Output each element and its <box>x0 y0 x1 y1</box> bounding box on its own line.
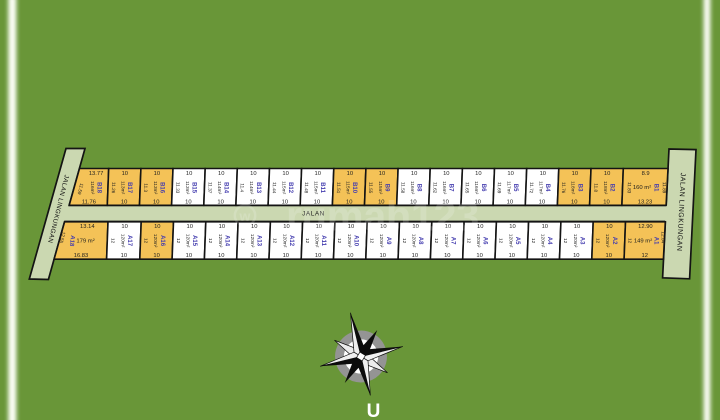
svg-text:10: 10 <box>379 171 385 177</box>
svg-text:10: 10 <box>186 224 192 230</box>
svg-text:B16: B16 <box>158 182 164 194</box>
svg-text:10: 10 <box>509 224 515 230</box>
svg-text:10: 10 <box>574 224 580 230</box>
svg-text:114m²: 114m² <box>216 181 222 195</box>
svg-text:11.69: 11.69 <box>497 182 502 194</box>
svg-text:12: 12 <box>531 238 536 244</box>
svg-text:12: 12 <box>176 238 181 244</box>
svg-text:11.3: 11.3 <box>143 183 148 192</box>
svg-text:10: 10 <box>507 171 513 177</box>
svg-text:11.33: 11.33 <box>175 182 180 194</box>
svg-text:12: 12 <box>144 238 149 244</box>
svg-text:120m²: 120m² <box>572 234 578 248</box>
svg-text:11.37: 11.37 <box>207 182 212 194</box>
svg-text:10: 10 <box>122 171 128 177</box>
svg-text:10: 10 <box>154 224 160 230</box>
svg-text:10: 10 <box>540 171 546 177</box>
svg-text:160 m²: 160 m² <box>633 185 651 191</box>
svg-text:B3: B3 <box>576 184 582 192</box>
svg-text:10: 10 <box>412 253 418 259</box>
svg-text:U: U <box>367 401 381 420</box>
svg-text:10: 10 <box>218 253 224 259</box>
svg-text:10: 10 <box>542 224 548 230</box>
svg-text:10: 10 <box>217 199 223 205</box>
svg-text:B9: B9 <box>383 184 389 192</box>
svg-text:A16: A16 <box>159 235 165 247</box>
svg-text:10: 10 <box>347 171 353 177</box>
svg-text:10: 10 <box>606 224 612 230</box>
svg-text:11.44: 11.44 <box>272 182 277 194</box>
svg-text:10: 10 <box>315 253 321 259</box>
svg-text:179 m²: 179 m² <box>76 239 94 245</box>
svg-text:10: 10 <box>571 199 577 205</box>
svg-text:117m²: 117m² <box>538 181 544 195</box>
svg-text:B8: B8 <box>416 184 422 192</box>
svg-text:A4: A4 <box>546 237 552 245</box>
svg-text:116m²: 116m² <box>89 181 95 195</box>
svg-text:10: 10 <box>476 253 482 259</box>
svg-text:A14: A14 <box>223 235 229 247</box>
svg-text:10: 10 <box>283 253 289 259</box>
svg-text:10: 10 <box>218 171 224 177</box>
svg-text:120m²: 120m² <box>152 234 158 248</box>
svg-text:11.83: 11.83 <box>627 182 632 194</box>
svg-text:A17: A17 <box>126 235 132 247</box>
svg-text:10: 10 <box>604 171 610 177</box>
svg-text:10: 10 <box>573 253 579 259</box>
svg-text:13.77: 13.77 <box>89 171 104 177</box>
svg-text:10: 10 <box>249 199 255 205</box>
svg-text:12.90: 12.90 <box>638 224 653 230</box>
svg-text:12: 12 <box>641 253 647 259</box>
svg-text:11.8: 11.8 <box>593 183 598 192</box>
svg-text:120m²: 120m² <box>249 234 255 248</box>
svg-text:10: 10 <box>121 199 127 205</box>
svg-text:10: 10 <box>507 199 513 205</box>
svg-text:11.76: 11.76 <box>561 182 566 194</box>
svg-text:10: 10 <box>443 171 449 177</box>
svg-text:10: 10 <box>475 171 481 177</box>
svg-text:10: 10 <box>186 171 192 177</box>
svg-text:120m²: 120m² <box>119 234 125 248</box>
svg-text:10: 10 <box>572 171 578 177</box>
svg-text:w: w <box>239 208 251 224</box>
svg-text:10: 10 <box>121 224 127 230</box>
svg-text:10: 10 <box>379 253 385 259</box>
svg-text:10: 10 <box>603 199 609 205</box>
svg-text:118m²: 118m² <box>570 181 576 195</box>
svg-text:12: 12 <box>563 238 568 244</box>
svg-text:A13: A13 <box>256 235 262 247</box>
svg-text:B1: B1 <box>653 184 659 192</box>
svg-text:10: 10 <box>314 171 320 177</box>
svg-text:10: 10 <box>509 253 515 259</box>
svg-text:10: 10 <box>251 224 257 230</box>
svg-text:10: 10 <box>250 171 256 177</box>
svg-text:A3: A3 <box>578 237 584 245</box>
svg-text:10: 10 <box>541 253 547 259</box>
svg-text:149 m²: 149 m² <box>634 239 652 245</box>
svg-text:A6: A6 <box>482 237 488 245</box>
svg-text:A1: A1 <box>653 237 659 245</box>
svg-text:B4: B4 <box>544 184 550 192</box>
svg-text:12: 12 <box>627 238 632 244</box>
svg-text:A15: A15 <box>191 235 197 247</box>
svg-text:10: 10 <box>282 171 288 177</box>
svg-text:120m²: 120m² <box>217 234 223 248</box>
svg-text:11.26: 11.26 <box>111 182 116 194</box>
svg-text:16.83: 16.83 <box>74 253 89 259</box>
svg-text:120m²: 120m² <box>185 234 191 248</box>
svg-text:114m²: 114m² <box>248 181 254 195</box>
svg-text:12: 12 <box>110 238 115 244</box>
svg-text:10: 10 <box>121 253 127 259</box>
svg-text:11.76: 11.76 <box>82 199 96 205</box>
svg-text:10: 10 <box>605 253 611 259</box>
svg-text:12.04: 12.04 <box>660 231 665 243</box>
svg-text:A5: A5 <box>514 237 520 245</box>
svg-text:10: 10 <box>153 199 159 205</box>
svg-text:10: 10 <box>539 199 545 205</box>
svg-text:11.72: 11.72 <box>529 182 534 194</box>
svg-text:B13: B13 <box>255 182 261 194</box>
svg-text:12: 12 <box>240 238 245 244</box>
svg-text:117m²: 117m² <box>505 181 511 195</box>
svg-text:120m²: 120m² <box>604 234 610 248</box>
svg-text:10: 10 <box>154 171 160 177</box>
svg-text:10: 10 <box>153 253 159 259</box>
svg-text:113m²: 113m² <box>120 181 126 195</box>
svg-text:B2: B2 <box>609 184 615 192</box>
svg-text:12: 12 <box>273 238 278 244</box>
svg-text:11.89: 11.89 <box>662 182 667 194</box>
svg-text:10: 10 <box>250 253 256 259</box>
svg-text:10: 10 <box>185 199 191 205</box>
svg-text:B18: B18 <box>96 182 102 194</box>
svg-text:12: 12 <box>208 238 213 244</box>
svg-text:B6: B6 <box>480 184 486 192</box>
svg-text:A2: A2 <box>611 237 617 245</box>
svg-text:8.9: 8.9 <box>642 171 650 177</box>
svg-text:11.4: 11.4 <box>239 183 244 192</box>
svg-text:B15: B15 <box>191 182 197 194</box>
svg-text:13.14: 13.14 <box>80 224 95 230</box>
svg-text:10: 10 <box>411 171 417 177</box>
svg-text:B17: B17 <box>126 182 132 194</box>
svg-text:113m²: 113m² <box>184 181 190 195</box>
svg-text:12: 12 <box>596 238 601 244</box>
svg-text:120m²: 120m² <box>540 234 546 248</box>
svg-text:120m²: 120m² <box>507 234 513 248</box>
svg-text:10: 10 <box>186 253 192 259</box>
svg-text:10: 10 <box>219 224 225 230</box>
svg-text:10: 10 <box>347 253 353 259</box>
svg-text:B14: B14 <box>223 182 229 194</box>
svg-text:rumah123: rumah123 <box>286 193 479 240</box>
svg-text:10: 10 <box>444 253 450 259</box>
svg-text:113m²: 113m² <box>152 181 158 195</box>
svg-text:118m²: 118m² <box>602 181 608 195</box>
svg-text:B7: B7 <box>448 184 454 192</box>
svg-text:12: 12 <box>499 238 504 244</box>
svg-text:B5: B5 <box>512 184 518 192</box>
svg-text:13.23: 13.23 <box>638 199 653 205</box>
